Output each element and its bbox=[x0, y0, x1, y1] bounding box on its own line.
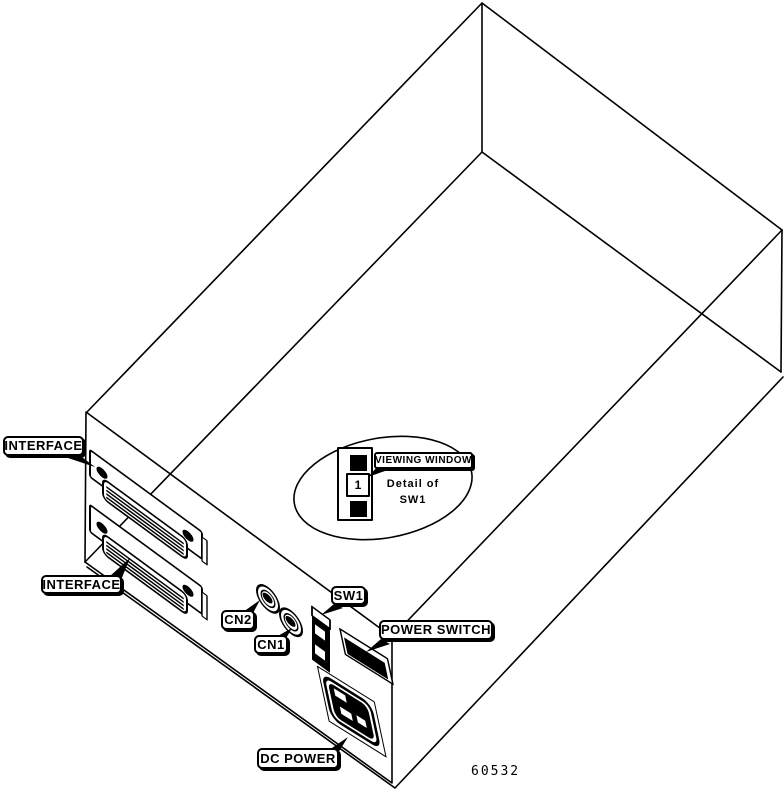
figure-number: 60532 bbox=[471, 764, 520, 779]
label-sw1: SW1 bbox=[331, 586, 366, 605]
detail-switch-button-upper bbox=[350, 455, 367, 471]
label-viewing-window-text: VIEWING WINDOW bbox=[375, 454, 472, 468]
label-power-switch-text: POWER SWITCH bbox=[381, 623, 491, 637]
viewing-window-value: 1 bbox=[347, 475, 369, 495]
label-cn1-text: CN1 bbox=[257, 638, 285, 652]
label-dc-power: DC POWER bbox=[257, 748, 339, 769]
detail-caption-line1: Detail of bbox=[382, 478, 444, 490]
label-cn1: CN1 bbox=[254, 635, 288, 654]
label-power-switch: POWER SWITCH bbox=[379, 620, 493, 640]
label-cn2: CN2 bbox=[221, 610, 255, 630]
enclosure-outline bbox=[85, 3, 783, 788]
detail-switch-button-lower bbox=[350, 501, 367, 517]
label-sw1-text: SW1 bbox=[334, 589, 364, 603]
case-top-edges bbox=[87, 3, 782, 412]
label-interface-top-text: INTERFACE bbox=[4, 439, 82, 453]
technical-illustration: INTERFACE INTERFACE CN2 CN1 SW1 POWER SW… bbox=[0, 0, 784, 793]
label-interface-bottom: INTERFACE bbox=[41, 575, 122, 594]
connector-plate-side bbox=[202, 592, 207, 620]
case-top-to-panel-edge bbox=[392, 230, 782, 637]
case-right-vertical-edge bbox=[781, 230, 782, 372]
label-dc-power-text: DC POWER bbox=[260, 752, 336, 766]
label-viewing-window: VIEWING WINDOW bbox=[374, 452, 473, 469]
line-art-layer bbox=[0, 0, 784, 793]
label-interface-top: INTERFACE bbox=[3, 436, 84, 456]
detail-caption-line2: SW1 bbox=[382, 494, 444, 506]
label-cn2-text: CN2 bbox=[224, 613, 252, 627]
label-interface-bottom-text: INTERFACE bbox=[42, 578, 120, 592]
connector-plate-side bbox=[202, 537, 207, 565]
